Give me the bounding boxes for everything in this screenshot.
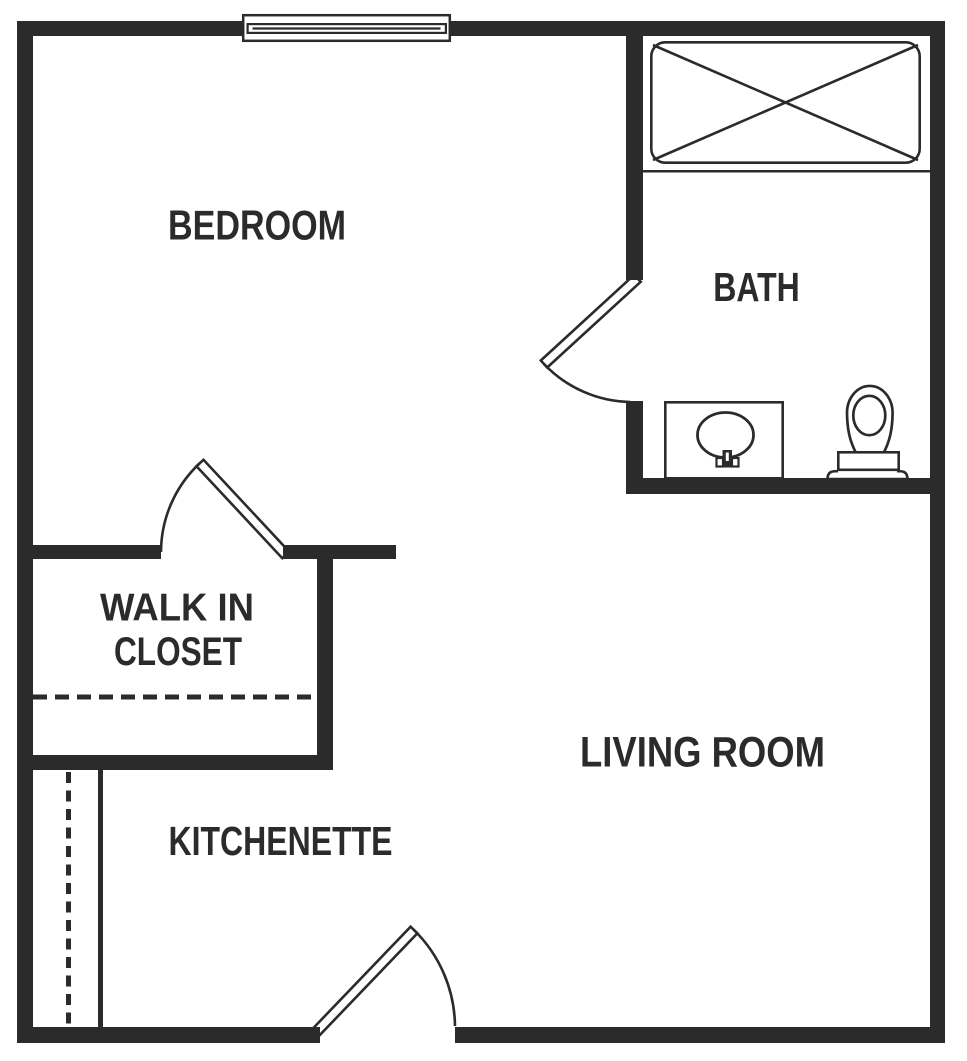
svg-text:WALK IN: WALK IN	[100, 587, 254, 630]
svg-text:BATH: BATH	[713, 264, 800, 310]
svg-text:CLOSET: CLOSET	[114, 630, 242, 674]
svg-text:KITCHENETTE: KITCHENETTE	[169, 818, 393, 864]
svg-text:LIVING ROOM: LIVING ROOM	[580, 729, 825, 777]
svg-text:BEDROOM: BEDROOM	[168, 202, 346, 249]
